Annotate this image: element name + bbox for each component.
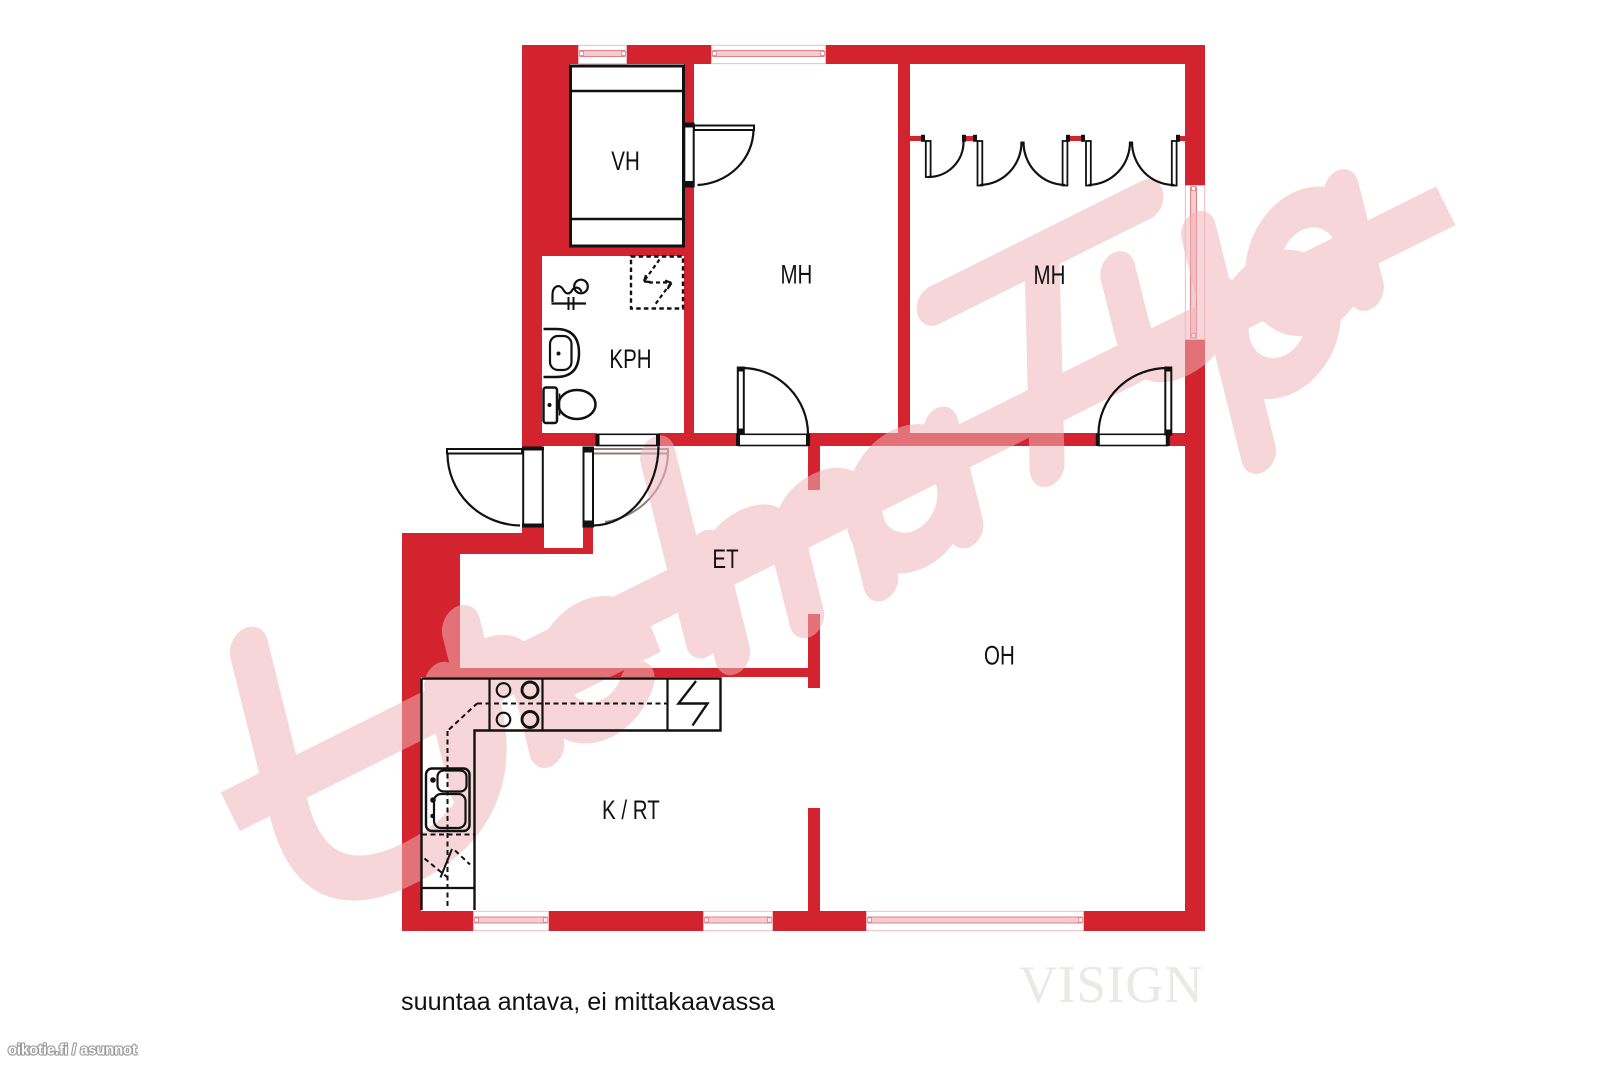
- svg-text:KPH: KPH: [609, 344, 651, 374]
- svg-text:OH: OH: [984, 641, 1015, 671]
- svg-text:MH: MH: [780, 260, 812, 290]
- svg-text:VH: VH: [611, 146, 639, 176]
- svg-text:suuntaa antava, ei mittakaavas: suuntaa antava, ei mittakaavassa: [401, 988, 776, 1016]
- svg-text:K / RT: K / RT: [602, 795, 660, 825]
- svg-text:VISIGN: VISIGN: [1019, 956, 1203, 1014]
- svg-text:MH: MH: [1034, 260, 1066, 290]
- svg-text:ET: ET: [712, 544, 739, 574]
- svg-text:oikotie.fi / asunnot: oikotie.fi / asunnot: [8, 1043, 137, 1059]
